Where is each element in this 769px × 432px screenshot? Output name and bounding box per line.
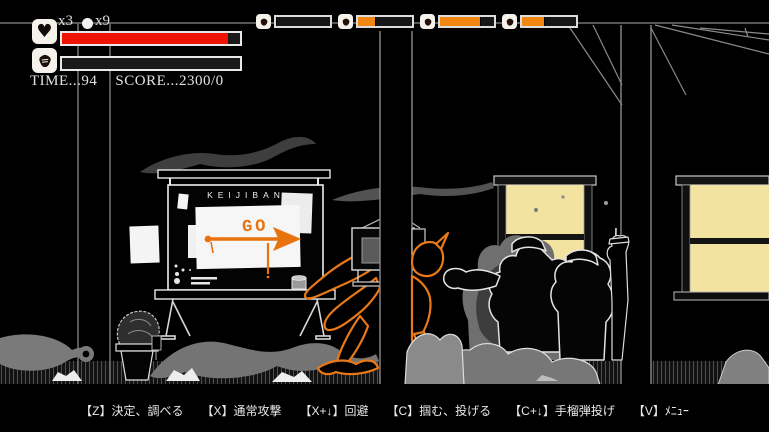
smoke-wisp-upper [140,137,316,173]
score-label: SCORE...2300/0 [115,73,223,89]
life-icon: ♥ [32,19,57,44]
health-bar-fill [62,33,228,44]
stamina-bar [60,56,242,71]
weapon-slot-4 [502,14,578,29]
game-screen[interactable]: KEIJIBAN GO [0,0,769,432]
rubble-heap-left [405,334,464,385]
fist-icon [32,48,57,73]
weapon-slot-1 [256,14,332,29]
paper [177,194,189,210]
lives-count: x3 [58,13,73,30]
time-label: TIME...94 [30,73,97,89]
signboard-title: KEIJIBAN [207,190,285,200]
weapon-gauge-row [256,14,578,29]
control-hint-grenade: 【C+↓】手榴弾投げ [509,402,615,419]
control-hint-confirm: 【Z】決定、調べる [80,402,183,419]
wall-speck [604,201,608,205]
control-hint-attack: 【X】通常攻撃 [201,402,281,419]
control-help-bar: 【Z】決定、調べる 【X】通常攻撃 【X+↓】回避 【C】掴む、投げる 【C+↓… [0,385,769,432]
brawler-2 [551,250,614,360]
fist-glyph [37,53,53,69]
grenade-icon [338,14,353,29]
control-hint-menu: 【V】ﾒﾆｭｰ [633,402,689,419]
smoke-wisp-mid [332,182,494,201]
window-lit-2 [674,176,769,300]
board-legs [161,299,330,339]
roof-truss [655,25,769,54]
paper [129,225,159,263]
rubble-heap-right [718,350,769,385]
weapon-gauge [274,15,332,28]
weapon-gauge-fill [522,17,545,26]
weapon-gauge [520,15,578,28]
small-sign [152,336,161,350]
weapon-gauge [438,15,496,28]
keijiban-signboard: KEIJIBAN GO [129,170,335,339]
grenade-icon [256,14,271,29]
health-bar [60,31,242,46]
canister-icon [292,276,306,289]
grenade-icon [502,14,517,29]
weapon-gauge-fill [358,17,376,26]
control-hint-grab: 【C】掴む、投げる [387,402,492,419]
weapon-slot-3 [420,14,496,29]
center-pole [380,31,412,385]
graffiti-text: GO [242,217,269,237]
status-line: TIME...94SCORE...2300/0 [30,73,242,90]
grenade-icon [420,14,435,29]
weapon-gauge-fill [276,17,277,26]
heart-icon: ♥ [36,23,52,41]
orbs-count: x9 [95,13,110,30]
weapon-gauge [356,15,414,28]
orb-icon [82,18,93,29]
weapon-slot-2 [338,14,414,29]
weapon-gauge-fill [440,17,481,26]
control-hint-dodge: 【X+↓】回避 [299,402,368,419]
